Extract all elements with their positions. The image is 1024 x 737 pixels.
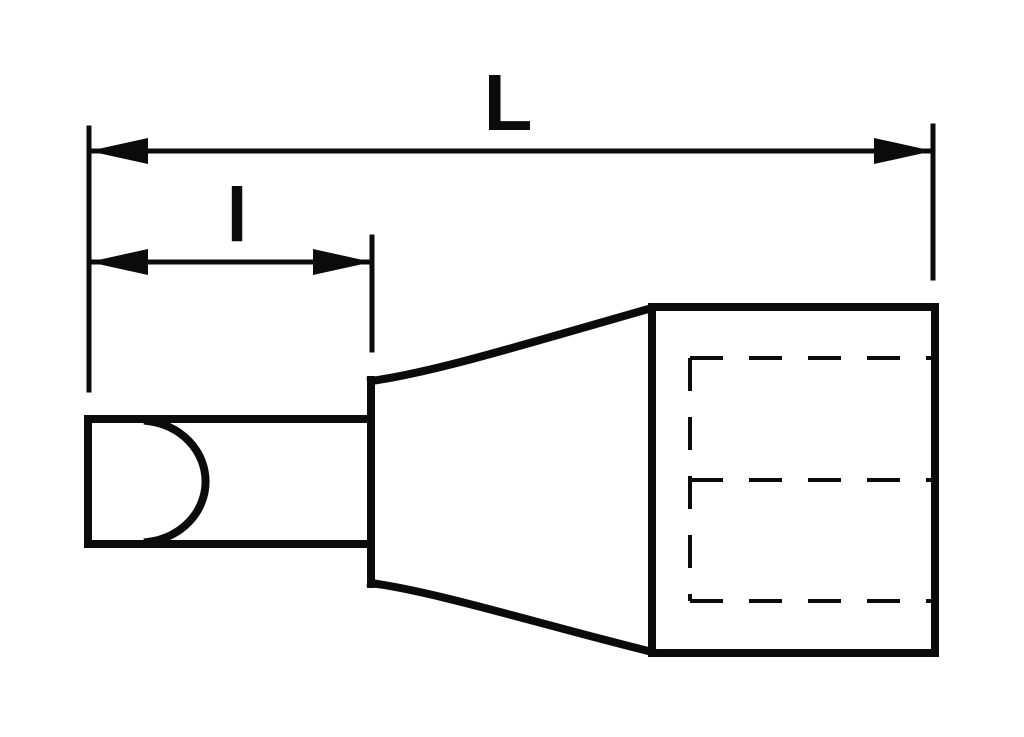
hidden-square-drive [690, 358, 933, 601]
technical-drawing-canvas: L l [0, 0, 1024, 737]
arrowhead-right-icon [313, 249, 372, 275]
drawing-ink-group: L l [88, 58, 935, 653]
taper-top-curve [371, 308, 652, 381]
slotted-blade-curve [148, 421, 206, 542]
arrowhead-left-icon [89, 249, 148, 275]
part-outline [88, 307, 935, 653]
taper-bottom-curve [371, 583, 652, 652]
label-tip-length: l [226, 173, 247, 258]
arrowhead-right-icon [874, 138, 933, 164]
dimension-tip-length: l [89, 173, 372, 350]
arrowhead-left-icon [89, 138, 148, 164]
dimension-overall-length: L [89, 58, 933, 390]
tip-and-shank-outline [88, 419, 371, 544]
label-overall-length: L [484, 58, 533, 147]
